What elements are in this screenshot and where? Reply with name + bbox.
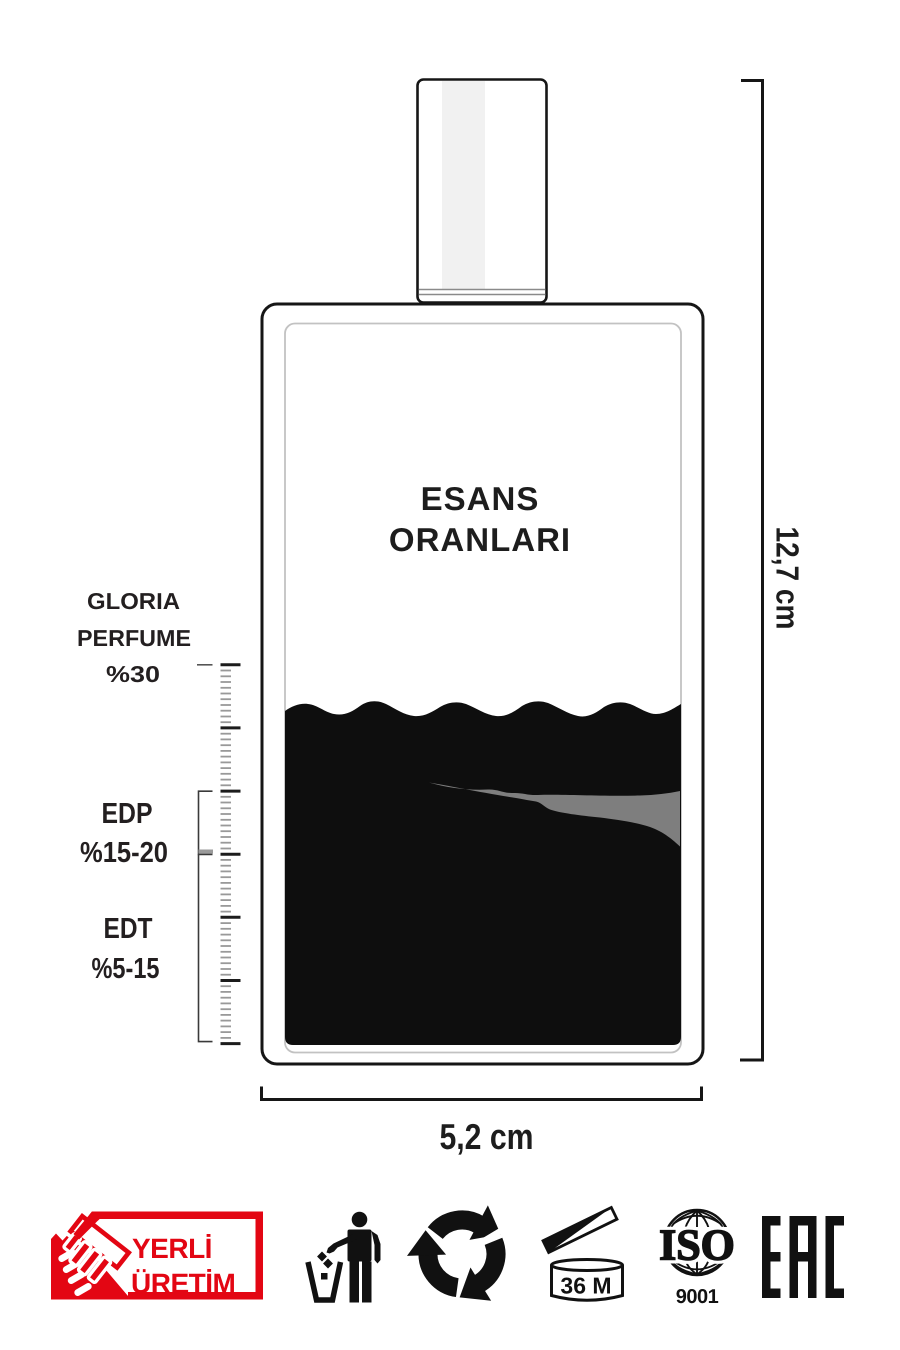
svg-text:PERFUME: PERFUME [77, 625, 191, 651]
svg-text:12,7 cm: 12,7 cm [770, 527, 806, 630]
svg-text:9001: 9001 [676, 1286, 719, 1308]
svg-text:%30: %30 [106, 661, 160, 687]
svg-text:EDP: EDP [102, 798, 153, 830]
svg-text:ESANS: ESANS [421, 480, 540, 517]
svg-text:36 M: 36 M [560, 1273, 611, 1299]
svg-text:%15-20: %15-20 [80, 837, 168, 869]
svg-text:5,2 cm: 5,2 cm [440, 1116, 534, 1157]
svg-text:ORANLARI: ORANLARI [389, 521, 571, 558]
svg-text:EDT: EDT [104, 913, 153, 945]
svg-text:GLORIA: GLORIA [87, 588, 180, 614]
svg-text:ÜRETİM: ÜRETİM [131, 1268, 235, 1299]
svg-text:ISO: ISO [659, 1221, 735, 1270]
svg-text:YERLİ: YERLİ [132, 1233, 212, 1264]
svg-text:%5-15: %5-15 [92, 953, 160, 985]
